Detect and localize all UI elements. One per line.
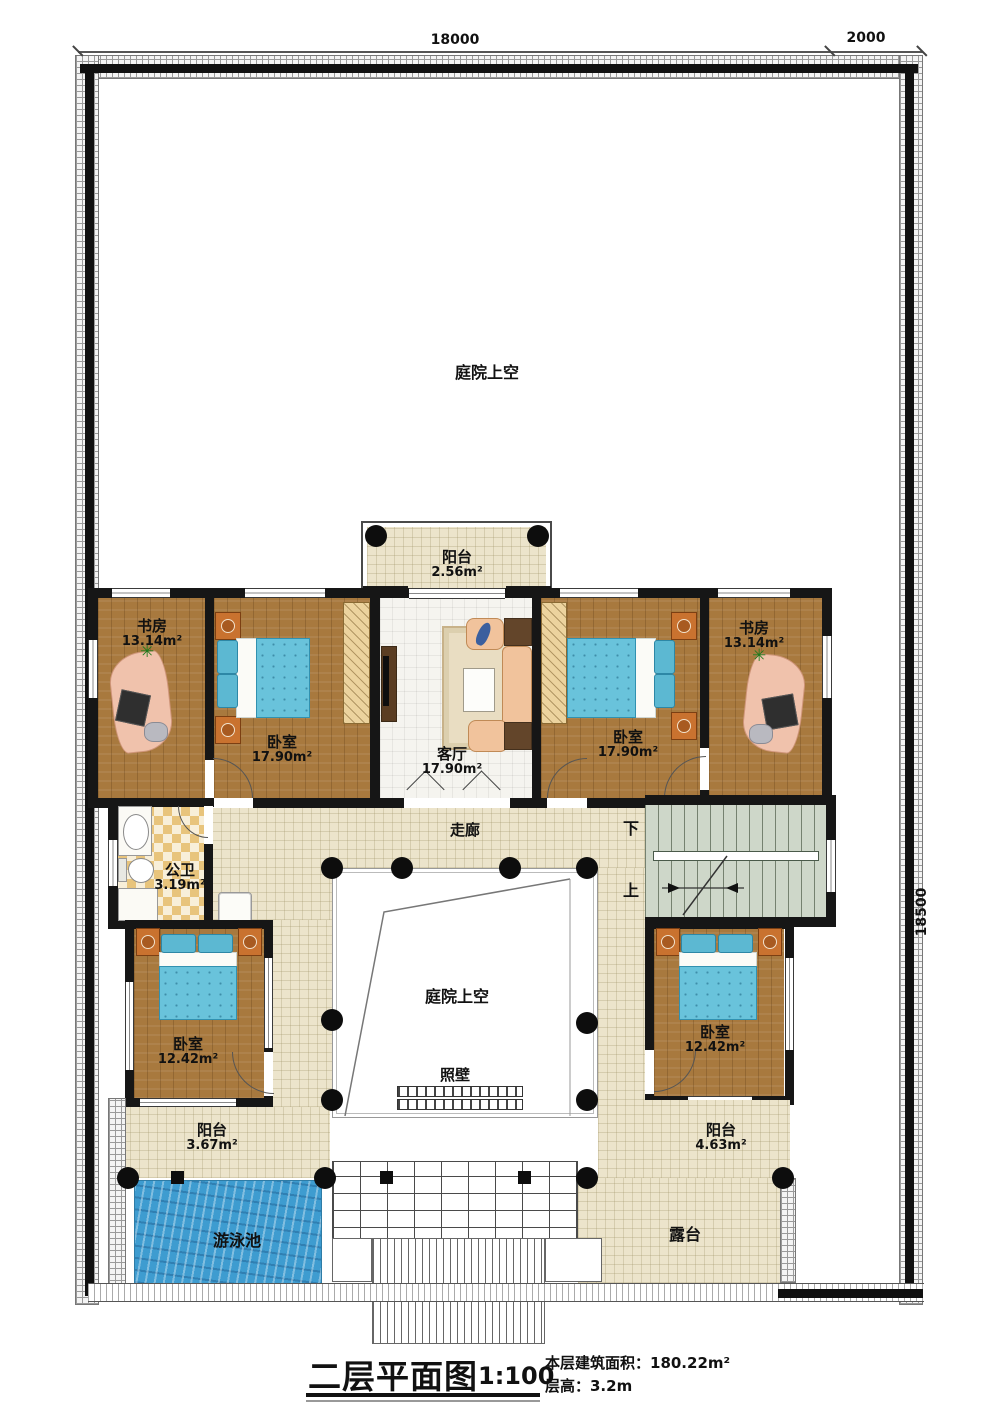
room-area: 17.90m² [598,746,658,761]
stair-up-label: 上 [623,882,639,900]
room-label-bedroom-se: 卧室 12.42m² [685,1024,745,1055]
room-name: 阳台 [186,1122,237,1139]
room-label-study-left: 书房 13.14m² [122,618,182,649]
room-label-study-right: 书房 13.14m² [724,620,784,651]
room-area: 13.14m² [122,635,182,650]
pool-label: 游泳池 [213,1232,261,1250]
room-label-bedroom-top-right: 卧室 17.90m² [598,729,658,760]
floor-area-text: 本层建筑面积：180.22m² [545,1352,730,1373]
room-area: 3.19m² [154,879,205,894]
screen-wall-label: 照壁 [440,1067,470,1084]
room-label-balcony-se: 阳台 4.63m² [695,1122,746,1153]
room-area: 12.42m² [158,1053,218,1068]
room-name: 卧室 [685,1024,745,1041]
room-area: 17.90m² [252,751,312,766]
room-name: 卧室 [598,729,658,746]
drawing-title: 二层平面图 [308,1350,478,1398]
room-label-balcony-top: 阳台 2.56m² [431,549,482,580]
floor-plan-canvas: 18000 2000 18500 庭院上空 [0,0,1000,1414]
center-courtyard-label: 庭院上空 [425,988,489,1006]
room-name: 卧室 [252,734,312,751]
room-area: 13.14m² [724,637,784,652]
room-area: 2.56m² [431,566,482,581]
room-name: 书房 [724,620,784,637]
title-underline-thin [306,1400,540,1402]
room-label-bedroom-sw: 卧室 12.42m² [158,1036,218,1067]
room-area: 17.90m² [422,763,482,778]
floor-height-text: 层高：3.2m [545,1375,632,1396]
room-name: 客厅 [422,746,482,763]
room-name: 阳台 [431,549,482,566]
room-label-balcony-sw: 阳台 3.67m² [186,1122,237,1153]
room-label-bedroom-top-left: 卧室 17.90m² [252,734,312,765]
room-name: 阳台 [695,1122,746,1139]
room-label-living: 客厅 17.90m² [422,746,482,777]
room-label-bath: 公卫 3.19m² [154,862,205,893]
room-name: 公卫 [154,862,205,879]
room-label-corridor: 走廊 [450,822,480,839]
plan-overlay-lines [0,0,1000,1414]
room-area: 12.42m² [685,1041,745,1056]
room-name: 书房 [122,618,182,635]
room-area: 4.63m² [695,1139,746,1154]
title-underline [306,1393,540,1397]
room-name: 卧室 [158,1036,218,1053]
room-area: 3.67m² [186,1139,237,1154]
terrace-label: 露台 [669,1226,701,1244]
drawing-scale: 1:100 [478,1362,554,1390]
stair-down-label: 下 [623,820,639,838]
